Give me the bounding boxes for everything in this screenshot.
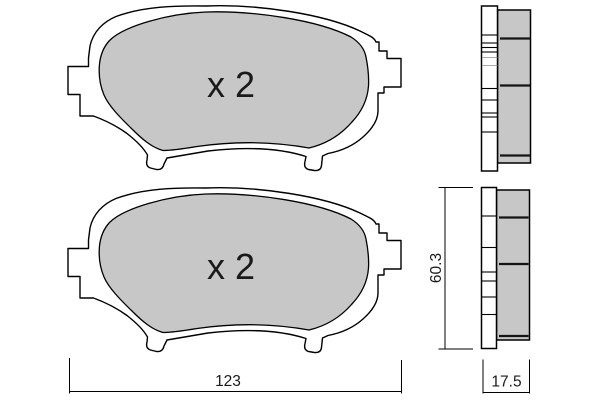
pad-front-view-top: x 2 bbox=[68, 6, 401, 171]
quantity-label: x 2 bbox=[207, 246, 255, 287]
quantity-label: x 2 bbox=[207, 64, 255, 105]
dimension-thickness: 17.5 bbox=[483, 360, 530, 394]
pad-front-view-bottom: x 2 bbox=[68, 188, 401, 353]
dimension-label-height: 60.3 bbox=[428, 253, 445, 283]
dimension-width: 123 bbox=[70, 358, 402, 394]
backplate-rect bbox=[482, 188, 497, 349]
dimension-height: 60.3 bbox=[428, 188, 473, 350]
pad-side-view-bottom bbox=[482, 188, 530, 349]
dimension-label-width: 123 bbox=[215, 373, 241, 390]
brake-pad-technical-drawing: x 2 x 2 bbox=[0, 0, 600, 400]
dimension-label-thickness: 17.5 bbox=[491, 374, 521, 391]
pad-side-view-top bbox=[482, 6, 531, 171]
